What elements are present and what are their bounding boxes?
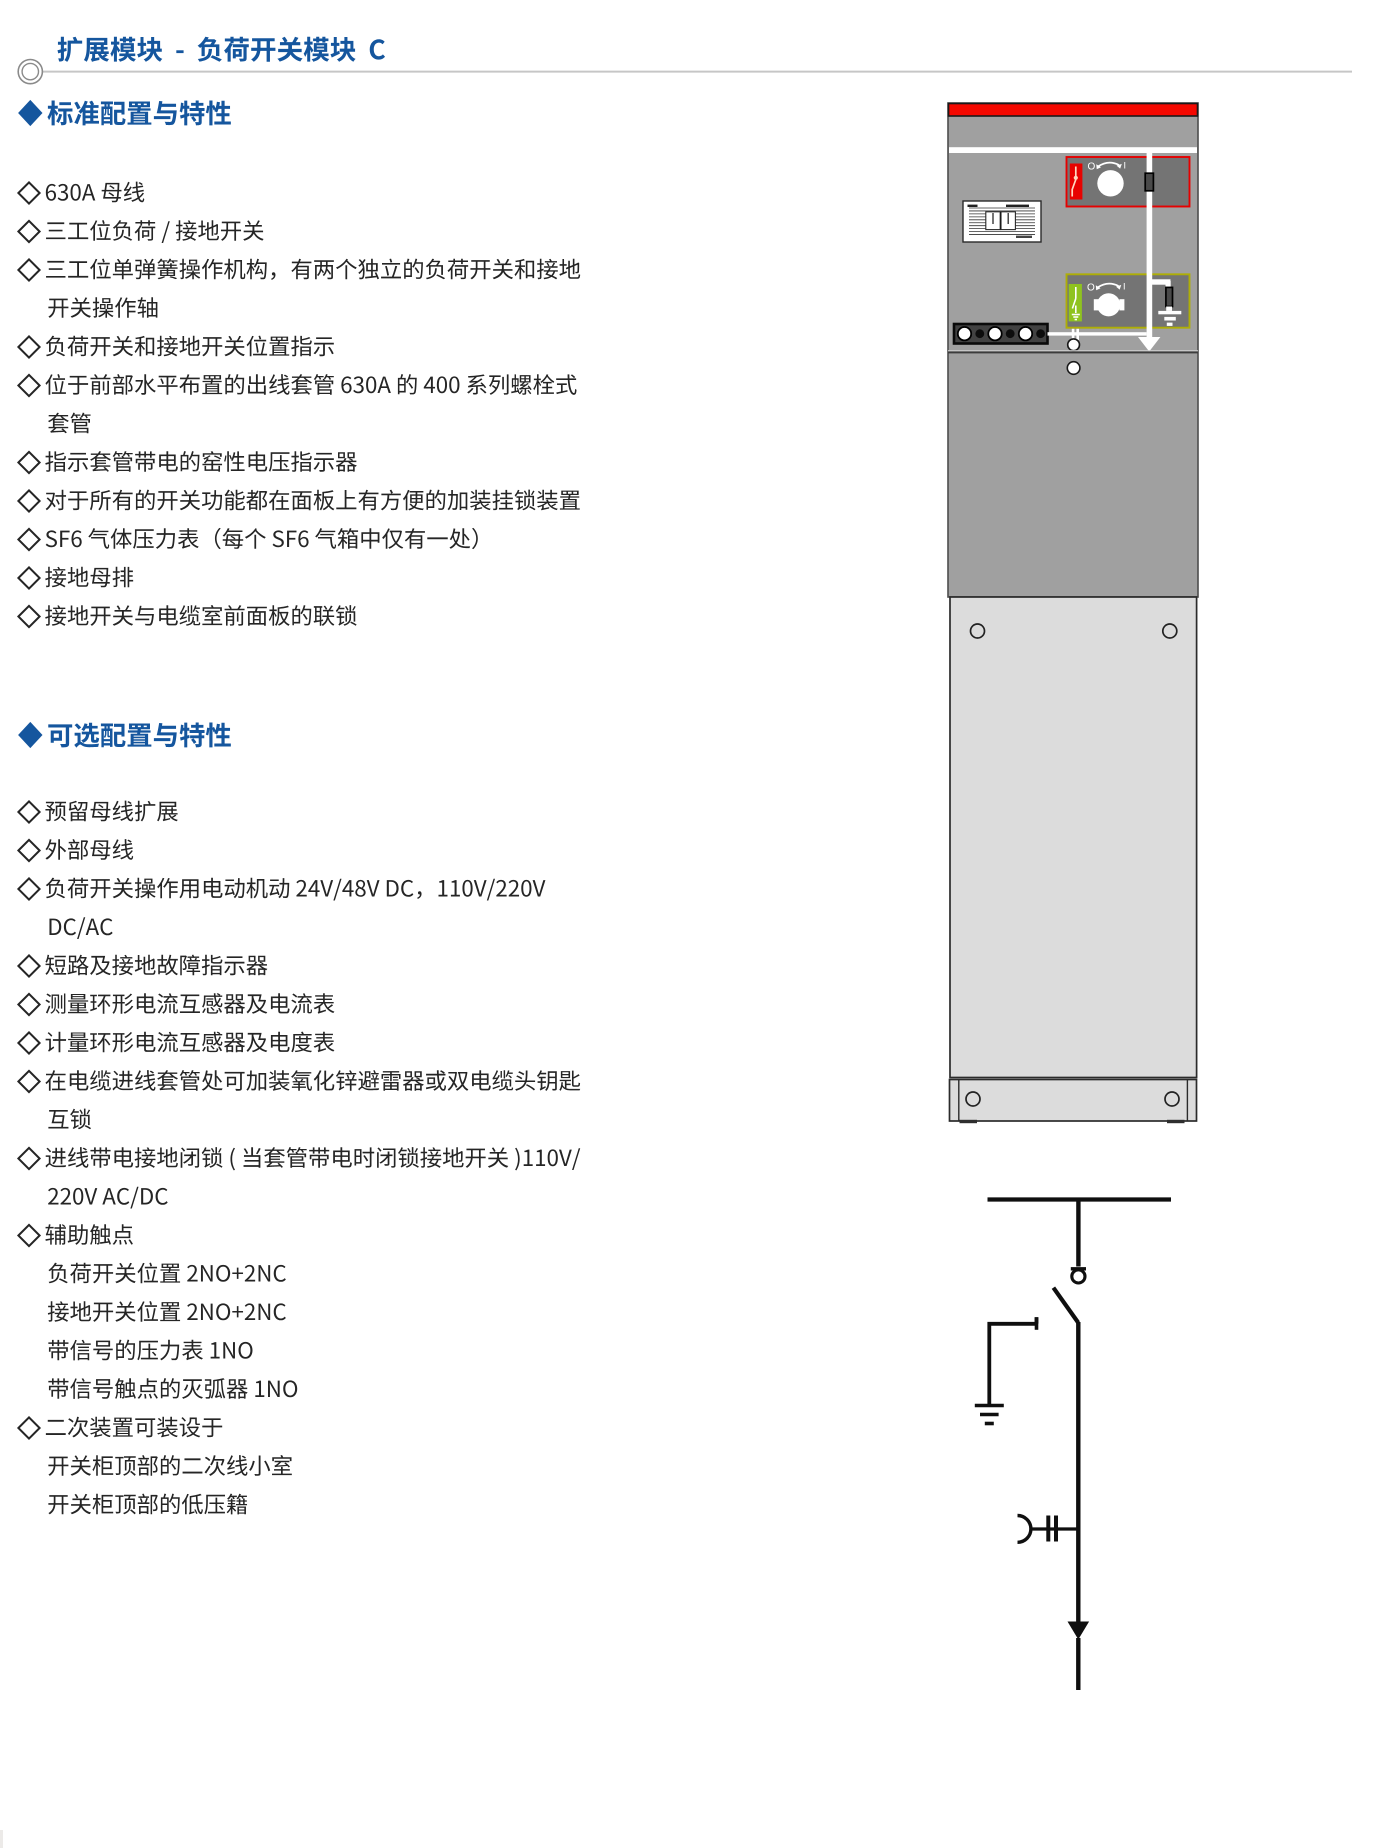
svg-text:I: I: [1124, 161, 1127, 171]
svg-text:O: O: [1087, 283, 1095, 294]
svg-text:I: I: [1123, 282, 1126, 292]
svg-text:O: O: [1088, 162, 1096, 173]
